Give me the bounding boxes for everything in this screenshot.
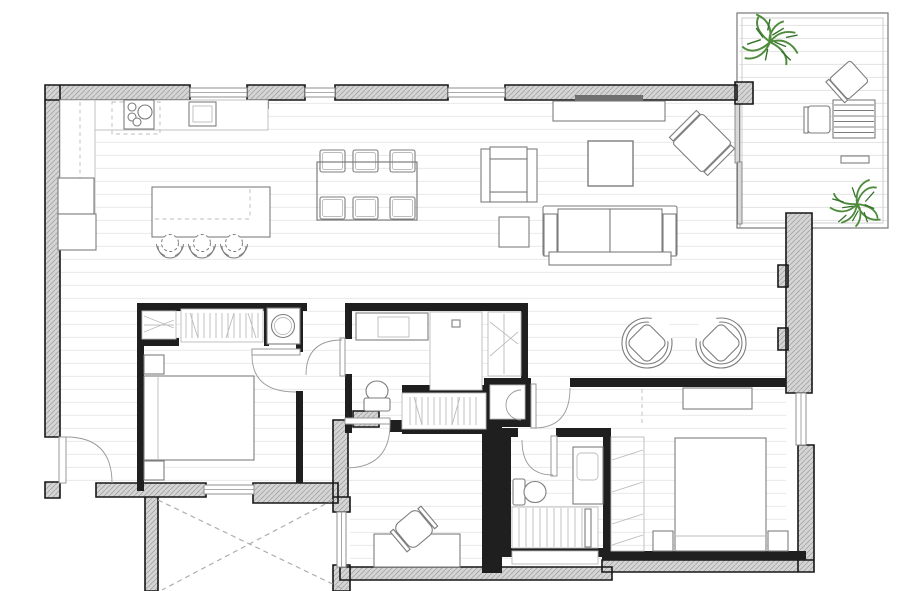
shelf-unit <box>142 311 176 339</box>
dining-chair <box>320 150 345 172</box>
tv <box>575 95 643 101</box>
storage-closet <box>490 385 525 420</box>
walk-in-shower <box>430 312 482 390</box>
window <box>190 88 247 97</box>
window <box>796 393 806 445</box>
kitchen-sink <box>189 102 216 126</box>
storage-cabinet <box>488 312 521 376</box>
floor-plan-page: Two-bedroom apartment floor plan with co… <box>0 0 900 591</box>
kitchen-appliance-cabinet <box>58 214 96 250</box>
armchair <box>481 147 537 202</box>
window <box>204 485 254 494</box>
open-wardrobe <box>402 393 486 429</box>
toilet <box>364 381 390 411</box>
vanity-sink <box>573 447 603 504</box>
dining-chair <box>353 197 378 219</box>
sofa <box>543 206 677 265</box>
toilet <box>513 479 546 505</box>
tv-sideboard <box>553 101 665 121</box>
nightstand <box>144 461 164 480</box>
window <box>448 88 505 97</box>
shower <box>512 507 598 548</box>
dining-chair <box>390 150 415 172</box>
vanity-sink <box>356 313 428 340</box>
side-table <box>499 217 529 247</box>
dining-chair <box>320 197 345 219</box>
cooktop <box>124 100 154 129</box>
kitchen-island <box>152 187 270 237</box>
kitchen-appliance-cabinet <box>58 178 94 214</box>
nightstand <box>653 531 673 551</box>
outdoor-chair <box>804 106 830 133</box>
double-bed <box>144 376 254 460</box>
window <box>305 88 335 97</box>
shelf <box>512 551 598 564</box>
outdoor-table <box>833 100 875 138</box>
dining-chair <box>390 197 415 219</box>
double-bed <box>675 438 766 551</box>
terrace <box>737 13 891 238</box>
coffee-table <box>588 141 633 186</box>
floor-plan-drawing: Two-bedroom apartment floor plan with co… <box>0 0 900 591</box>
nightstand <box>144 355 164 374</box>
window <box>337 512 346 567</box>
wardrobe <box>181 309 263 342</box>
washing-machine <box>267 308 300 344</box>
nightstand <box>768 531 788 551</box>
outdoor-bench <box>841 156 869 163</box>
dresser <box>683 388 752 409</box>
dining-chair <box>353 150 378 172</box>
